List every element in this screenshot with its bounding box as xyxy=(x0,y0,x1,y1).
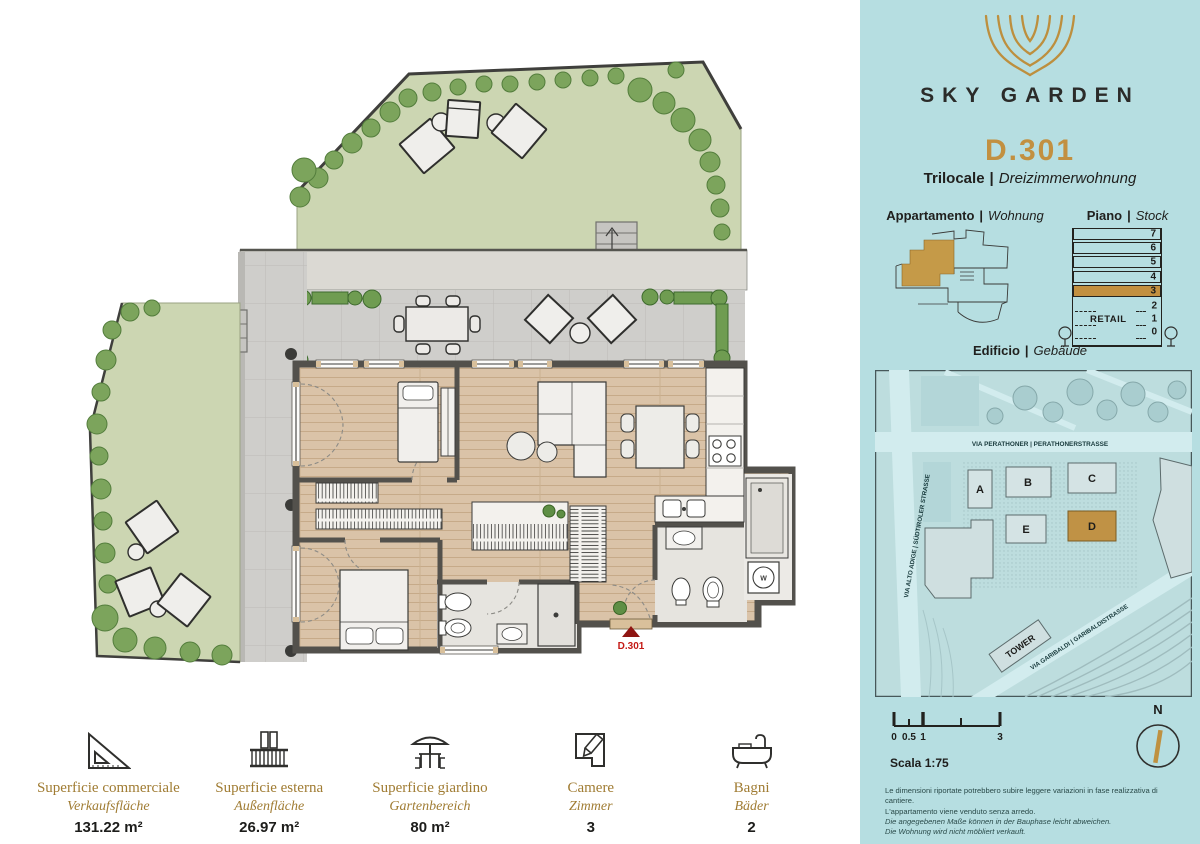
highlighted-apartment-shape xyxy=(902,240,954,286)
site-map: TOWER A B C D E VIA PERATHONER | PERATHO… xyxy=(875,370,1192,697)
upper-terrace xyxy=(290,289,745,368)
entrance-label: D.301 xyxy=(618,641,645,652)
bidet xyxy=(445,593,471,611)
stat-superficie-esterna: Superficie esterna Außenfläche 26.97 m² xyxy=(189,728,349,836)
toilet-2 xyxy=(703,577,723,603)
building-b-label: B xyxy=(1024,477,1032,489)
washing-machine: W xyxy=(748,562,779,593)
stat-label-it: Superficie esterna xyxy=(215,780,323,797)
compass-needle xyxy=(1155,730,1160,763)
stat-value: 2 xyxy=(747,819,755,836)
street-north-label: VIA PERATHONER | PERATHONERSTRASSE xyxy=(972,441,1109,448)
unit-type-it: Trilocale xyxy=(924,170,985,187)
stat-label-it: Bagni xyxy=(734,780,770,797)
left-garden xyxy=(87,300,240,665)
washer-label: W xyxy=(760,576,767,583)
upper-garden xyxy=(290,62,741,256)
building-e-label: E xyxy=(1022,524,1029,536)
stat-value: 80 m² xyxy=(410,819,449,836)
disclaimer-line: Die angegebenen Maße können in der Bauph… xyxy=(885,817,1185,827)
plan-page: W xyxy=(0,0,860,844)
scale-tick-05: 0.5 xyxy=(902,732,916,743)
compass-north-label: N xyxy=(1153,702,1162,717)
stat-label-de: Gartenbereich xyxy=(389,799,470,815)
scale-tick-0: 0 xyxy=(891,732,897,743)
stat-camere: Camere Zimmer 3 xyxy=(511,728,671,836)
stat-label-de: Zimmer xyxy=(569,799,613,815)
stat-superficie-commerciale: Superficie commerciale Verkaufsfläche 13… xyxy=(28,728,188,836)
floor-plan: W xyxy=(0,0,860,710)
stat-label-it: Superficie commerciale xyxy=(37,780,180,797)
info-panel: SKY GARDEN D.301 Trilocale|Dreizimmerwoh… xyxy=(860,0,1200,844)
disclaimer-line: Le dimensioni riportate potrebbero subir… xyxy=(885,786,1185,807)
apartment-position-diagram xyxy=(888,224,1056,338)
building-d-label: D xyxy=(1088,521,1096,533)
stat-label-de: Außenfläche xyxy=(234,799,304,815)
bidet-2 xyxy=(672,578,690,602)
stat-label-it: Camere xyxy=(567,780,614,797)
building-a-label: A xyxy=(976,484,984,496)
disclaimer-line: Die Wohnung wird nicht möbliert verkauft… xyxy=(885,827,1185,837)
unit-code: D.301 xyxy=(860,134,1200,168)
stat-value: 26.97 m² xyxy=(239,819,299,836)
coffee-table xyxy=(507,432,535,460)
scale-tick-1: 1 xyxy=(920,732,926,743)
scale-label: Scala 1:75 xyxy=(890,756,949,770)
stat-bagni: Bagni Bäder 2 xyxy=(672,728,832,836)
floor-stack: 7 6 5 4 3 2 RETAIL1 0 xyxy=(1072,228,1162,347)
balcony-icon xyxy=(246,728,292,772)
bedroom-2 xyxy=(340,570,408,650)
bath-icon xyxy=(729,728,775,772)
unit-type: Trilocale|Dreizimmerwohnung xyxy=(860,170,1200,187)
sky-garden-logo-icon xyxy=(980,14,1080,78)
disclaimer: Le dimensioni riportate potrebbero subir… xyxy=(885,786,1185,837)
bedroom-1 xyxy=(398,382,438,462)
plant xyxy=(614,602,627,615)
building-c-label: C xyxy=(1088,473,1096,485)
stat-label-it: Superficie giardino xyxy=(372,780,487,797)
disclaimer-line: L'appartamento viene venduto senza arred… xyxy=(885,807,1185,817)
upper-walkway xyxy=(240,250,747,290)
stat-label-de: Bäder xyxy=(734,799,768,815)
stat-value: 131.22 m² xyxy=(74,819,142,836)
scale-bar: 0 0.5 1 3 xyxy=(888,708,1028,754)
floor-section-header: Piano|Stock xyxy=(1065,208,1190,223)
rooms-icon xyxy=(568,728,614,772)
scale-tick-3: 3 xyxy=(997,732,1003,743)
toilet xyxy=(445,619,471,637)
stats-row: Superficie commerciale Verkaufsfläche 13… xyxy=(0,728,860,836)
unit-type-de: Dreizimmerwohnung xyxy=(999,170,1137,187)
stat-superficie-giardino: Superficie giardino Gartenbereich 80 m² xyxy=(350,728,510,836)
stat-label-de: Verkaufsfläche xyxy=(67,799,149,815)
set-square-icon xyxy=(85,728,131,772)
highlighted-floor-row: 3 xyxy=(1073,285,1161,297)
apartment: W xyxy=(292,360,792,654)
building-section-header: Edificio|Gebäude xyxy=(860,343,1200,358)
kitchen-sink xyxy=(663,500,681,517)
stat-value: 3 xyxy=(587,819,595,836)
compass: N xyxy=(1128,702,1188,774)
brand-name: SKY GARDEN xyxy=(860,84,1200,108)
apartment-section-header: Appartamento|Wohnung xyxy=(870,208,1060,223)
entrance-marker: D.301 xyxy=(618,626,645,652)
garden-icon xyxy=(407,728,453,772)
